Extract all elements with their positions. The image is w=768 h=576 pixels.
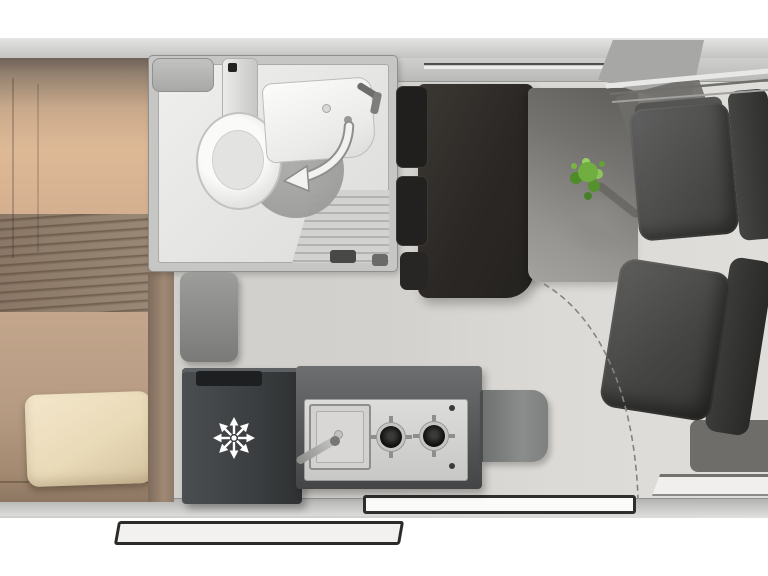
travel-bench (418, 84, 534, 298)
bed-side-board (148, 272, 174, 502)
floorplan-canvas (0, 0, 768, 576)
hob-burner (423, 425, 445, 447)
wall-window-line (424, 63, 620, 65)
driver-seat-cushion (628, 102, 739, 242)
entry-step-rail (114, 521, 404, 545)
bench-headrest (396, 86, 428, 168)
sliding-door-opening (363, 495, 636, 514)
basin-faucet-dot (344, 116, 352, 124)
snowflake-icon (208, 412, 260, 464)
bedding-crease (12, 78, 14, 258)
toilet-bowl-inner (212, 130, 264, 190)
plant-icon (578, 162, 598, 182)
top-wall-dinette (395, 58, 768, 82)
bathroom-shelf (152, 58, 214, 92)
bed-pillow (24, 391, 153, 487)
bench-headrest (400, 252, 428, 290)
bathroom-door-handle (330, 250, 356, 263)
bathroom-door-hinge (372, 254, 388, 266)
wall-window-highlight (424, 66, 620, 69)
stool (180, 272, 238, 362)
bed-blanket (0, 214, 172, 312)
passenger-seat-cushion (598, 257, 732, 423)
passenger-seat (592, 229, 768, 448)
sink-tap-base (330, 436, 340, 446)
bench-headrest (396, 176, 428, 246)
toilet-flush-button (228, 63, 237, 72)
bed-mattress-upper (0, 58, 172, 214)
hob-burner (380, 426, 402, 448)
worktop-extension-flap (480, 390, 548, 462)
refrigerator-vent (196, 371, 262, 386)
hob-screw (449, 463, 455, 469)
bedding-crease (37, 84, 39, 252)
cab-door-window (652, 474, 768, 496)
hob-screw (449, 405, 455, 411)
basin-drain (322, 104, 331, 113)
